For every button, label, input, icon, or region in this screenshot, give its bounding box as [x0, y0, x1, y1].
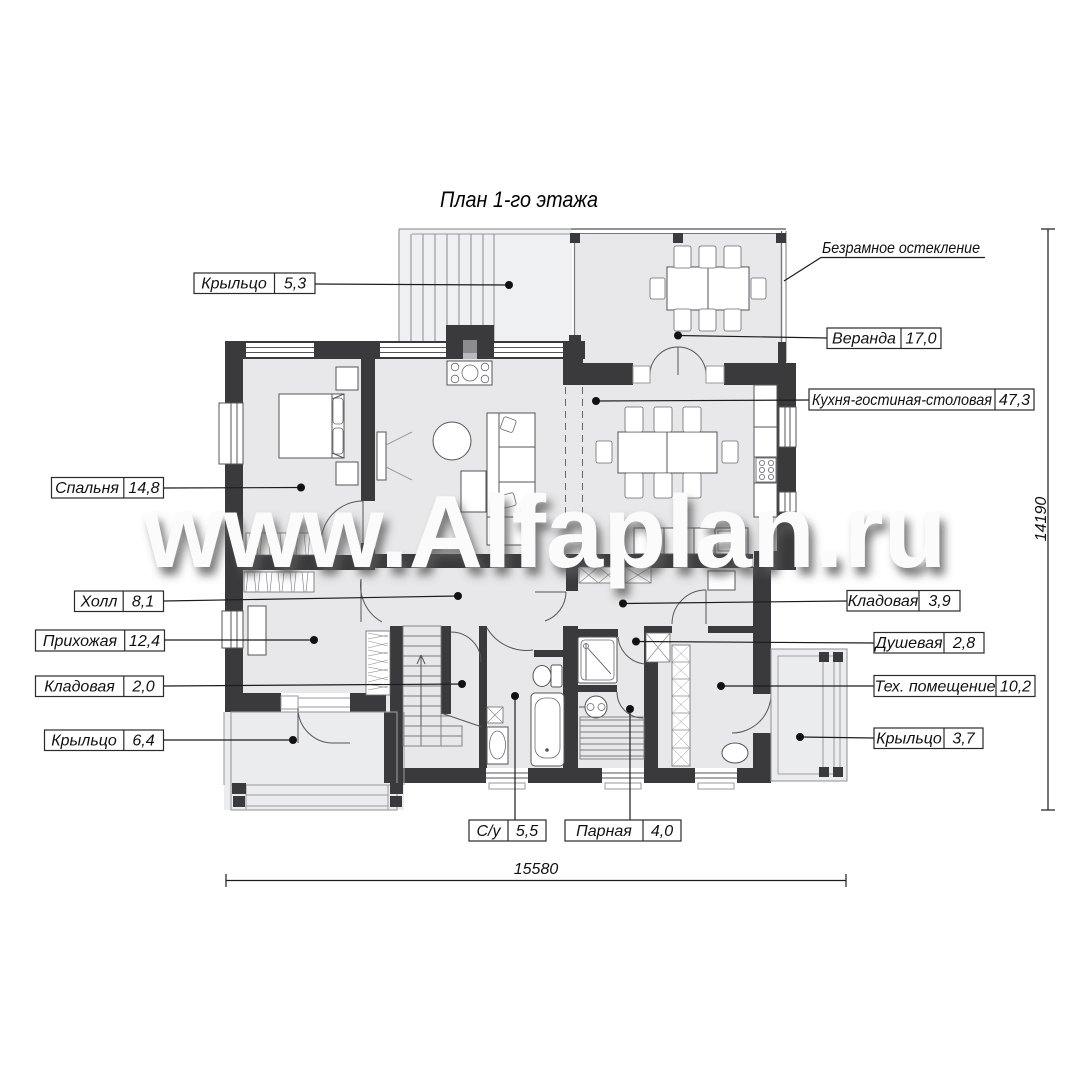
svg-text:8,1: 8,1 [132, 594, 154, 611]
svg-text:Кухня-гостиная-столовая: Кухня-гостиная-столовая [812, 392, 992, 409]
svg-text:3,7: 3,7 [952, 731, 975, 748]
svg-text:Крыльцо: Крыльцо [51, 733, 117, 750]
svg-text:Кладовая: Кладовая [44, 679, 115, 696]
svg-text:17,0: 17,0 [905, 331, 936, 348]
svg-text:Безрамное остекление: Безрамное остекление [822, 240, 980, 257]
svg-text:Кладовая: Кладовая [848, 593, 919, 610]
svg-text:3,9: 3,9 [928, 593, 950, 610]
svg-text:План 1-го этажа: План 1-го этажа [440, 187, 598, 212]
svg-text:Тех. помещение: Тех. помещение [874, 679, 995, 696]
svg-text:Холл: Холл [80, 594, 118, 611]
svg-text:Спальня: Спальня [55, 480, 119, 497]
svg-text:5,5: 5,5 [516, 823, 538, 840]
svg-text:47,3: 47,3 [999, 392, 1030, 409]
svg-text:Парная: Парная [576, 823, 632, 840]
svg-text:4,0: 4,0 [651, 823, 673, 840]
svg-text:www.Alfaplan.ru: www.Alfaplan.ru [142, 474, 946, 589]
svg-text:Веранда: Веранда [832, 331, 896, 348]
svg-text:14190: 14190 [1033, 497, 1050, 542]
svg-text:5,3: 5,3 [284, 276, 306, 293]
svg-text:Крыльцо: Крыльцо [201, 276, 267, 293]
svg-text:6,4: 6,4 [132, 733, 154, 750]
svg-text:Прихожая: Прихожая [43, 633, 118, 650]
svg-text:Душевая: Душевая [873, 635, 943, 652]
svg-text:10,2: 10,2 [1000, 679, 1031, 696]
svg-text:15580: 15580 [514, 861, 559, 878]
svg-text:12,4: 12,4 [129, 633, 160, 650]
svg-text:2,8: 2,8 [952, 635, 975, 652]
svg-text:2,0: 2,0 [131, 679, 154, 696]
svg-text:Крыльцо: Крыльцо [876, 731, 942, 748]
svg-text:С/у: С/у [477, 823, 502, 840]
svg-text:14,8: 14,8 [128, 480, 159, 497]
